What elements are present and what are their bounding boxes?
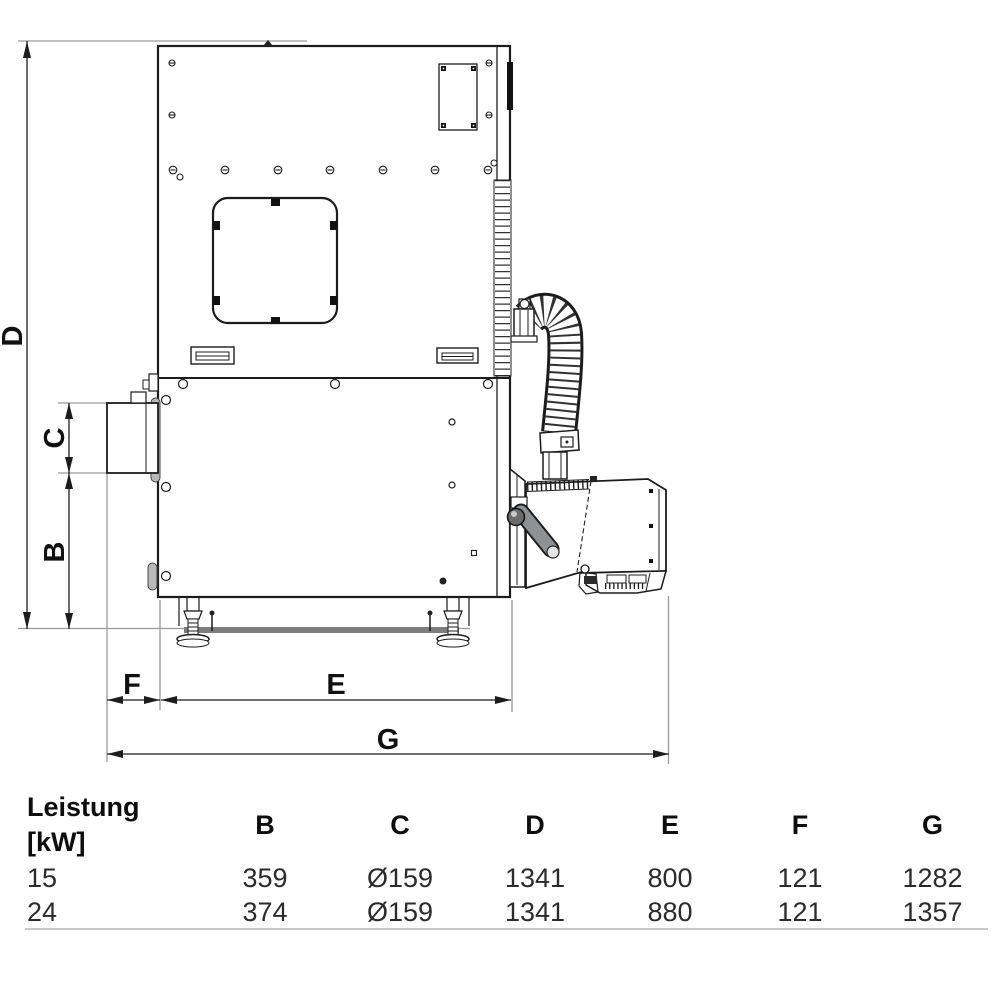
table-row: 24 374 Ø159 1341 880 121 1357 bbox=[0, 895, 1000, 929]
base-frame bbox=[179, 597, 469, 631]
dimension-label-g: G bbox=[377, 724, 400, 756]
dimension-label-f: F bbox=[123, 669, 141, 701]
spec-table: Leistung [kW] B C D E F G 15 359 Ø159 13… bbox=[0, 789, 1000, 929]
burner-unit bbox=[508, 469, 667, 594]
adjustable-feet bbox=[177, 597, 469, 647]
value-f: 121 bbox=[735, 897, 865, 928]
power-value: 24 bbox=[0, 897, 195, 928]
boiler-technical-drawing: D C B F E bbox=[0, 0, 1000, 770]
dimension-g: G bbox=[107, 724, 669, 758]
boiler-dimension-sheet: D C B F E bbox=[0, 0, 1000, 1000]
value-g: 1282 bbox=[865, 863, 1000, 894]
power-unit: [kW] bbox=[27, 825, 195, 860]
lever-pivot bbox=[508, 509, 525, 526]
dimension-label-b: B bbox=[39, 542, 71, 563]
corrugated-channel bbox=[494, 180, 511, 376]
col-header-c: C bbox=[335, 810, 465, 841]
value-b: 359 bbox=[195, 863, 335, 894]
boiler-body bbox=[158, 40, 513, 597]
power-label: Leistung bbox=[27, 790, 195, 825]
hose-collar bbox=[540, 430, 579, 479]
dimension-b: B bbox=[39, 473, 73, 629]
dimension-f: F bbox=[107, 669, 160, 704]
value-e: 800 bbox=[605, 863, 735, 894]
value-c: Ø159 bbox=[335, 897, 465, 928]
power-column-header: Leistung [kW] bbox=[0, 790, 195, 860]
col-header-d: D bbox=[465, 810, 605, 841]
value-c: Ø159 bbox=[335, 863, 465, 894]
spec-table-header: Leistung [kW] B C D E F G bbox=[0, 789, 1000, 861]
value-d: 1341 bbox=[465, 863, 605, 894]
value-d: 1341 bbox=[465, 897, 605, 928]
side-hinge-bar bbox=[507, 62, 513, 110]
table-row: 15 359 Ø159 1341 800 121 1282 bbox=[0, 861, 1000, 895]
value-f: 121 bbox=[735, 863, 865, 894]
flue-outlet bbox=[107, 374, 158, 473]
value-g: 1357 bbox=[865, 897, 1000, 928]
dimension-label-e: E bbox=[326, 669, 345, 701]
value-b: 374 bbox=[195, 897, 335, 928]
table-bottom-rule bbox=[25, 928, 988, 930]
col-header-g: G bbox=[865, 810, 1000, 841]
dimension-c: C bbox=[39, 403, 73, 473]
power-value: 15 bbox=[0, 863, 195, 894]
dimension-label-d: D bbox=[0, 326, 29, 347]
col-header-f: F bbox=[735, 810, 865, 841]
dimension-d: D bbox=[0, 41, 31, 629]
value-e: 880 bbox=[605, 897, 735, 928]
maintenance-door bbox=[213, 198, 337, 324]
dimension-label-c: C bbox=[39, 427, 71, 448]
col-header-e: E bbox=[605, 810, 735, 841]
dimension-e: E bbox=[161, 669, 511, 704]
col-header-b: B bbox=[195, 810, 335, 841]
pellet-hose bbox=[511, 299, 579, 479]
burner-top-bolt bbox=[590, 476, 597, 482]
